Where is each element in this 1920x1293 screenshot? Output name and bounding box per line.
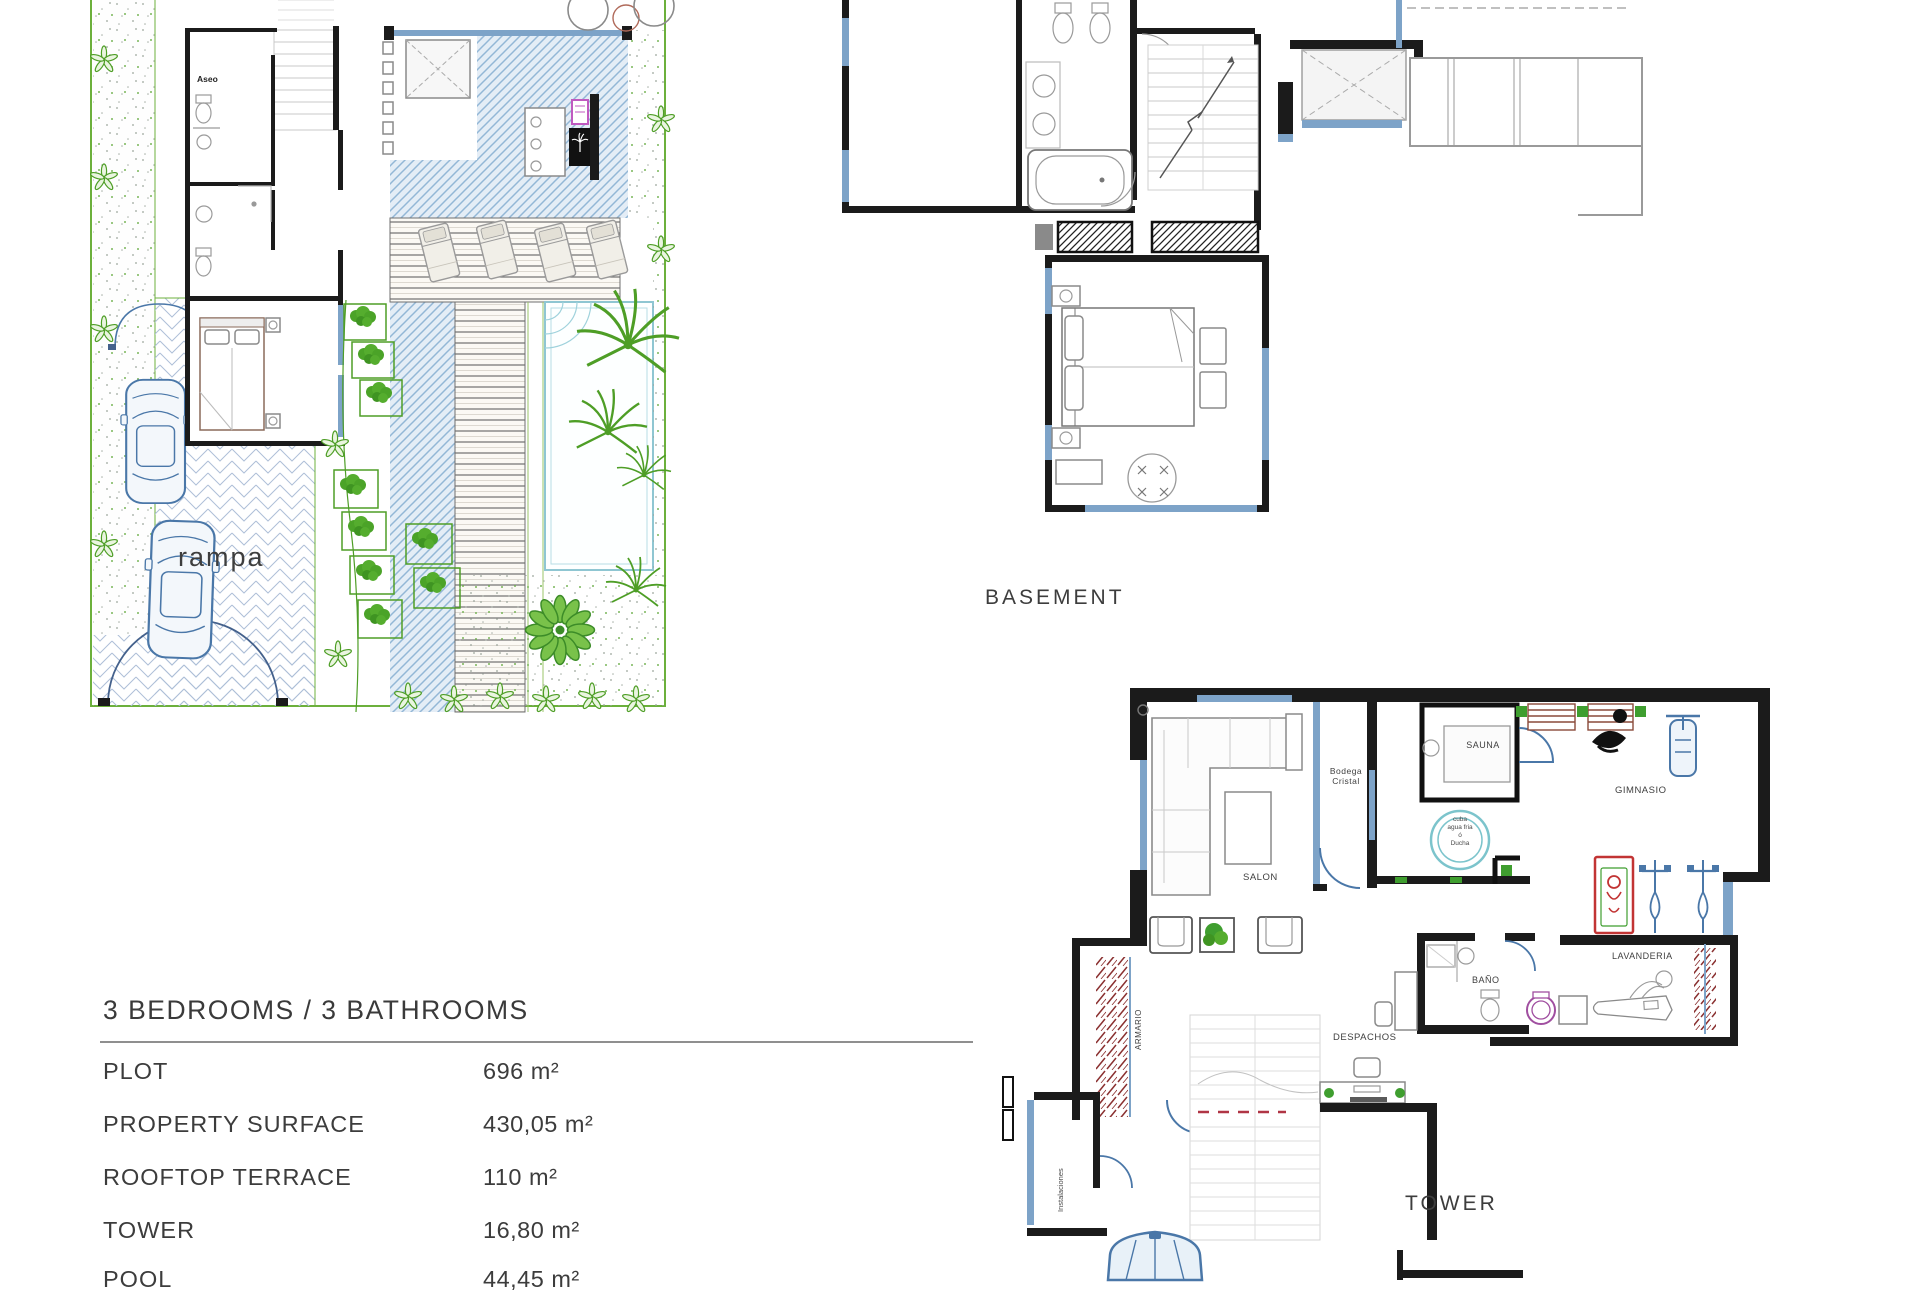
bodega-label: Bodega Cristal — [1316, 766, 1376, 786]
spec-label: TOWER — [103, 1217, 195, 1244]
house — [185, 0, 345, 446]
coffee-table — [1225, 792, 1271, 864]
stairs — [274, 0, 336, 130]
ironing-icon — [1594, 971, 1673, 1020]
spec-label: ROOFTOP TERRACE — [103, 1164, 352, 1191]
boulder-icons — [568, 0, 674, 31]
bodega-line1: Bodega — [1330, 766, 1362, 776]
instalaciones-label: Instalaciones — [1056, 1168, 1065, 1212]
basement-bathroom — [1026, 0, 1137, 210]
spec-value: 696 m² — [483, 1058, 559, 1085]
round-table-icon — [1128, 454, 1176, 502]
site-plan-drawing — [88, 0, 668, 712]
sauna-label: SAUNA — [1452, 740, 1514, 750]
lavanderia-label: LAVANDERIA — [1612, 951, 1673, 961]
car-icon — [121, 380, 190, 503]
armario-label: ARMARIO — [1134, 1009, 1143, 1050]
sink-icon — [1026, 62, 1060, 148]
toilet-icon — [1053, 3, 1110, 43]
cuba-line3: ó — [1458, 832, 1462, 839]
gym-machine-red — [1595, 857, 1633, 933]
skylight — [406, 40, 470, 98]
hanger-rail — [1694, 944, 1716, 1034]
garden-strip-left — [90, 0, 155, 635]
palm-sign-icon — [569, 128, 591, 166]
spec-label: PROPERTY SURFACE — [103, 1111, 365, 1138]
elevator — [1278, 40, 1423, 142]
bodega-corridor — [1313, 702, 1377, 891]
plant-icon — [1200, 918, 1234, 952]
cuba-line2: agua fria — [1447, 824, 1472, 831]
spec-value: 430,05 m² — [483, 1111, 593, 1138]
basement-stairs — [1135, 28, 1261, 230]
cuba-line1: cuba — [1453, 816, 1467, 823]
spec-value: 16,80 m² — [483, 1217, 580, 1244]
washer-icon — [1527, 992, 1555, 1024]
bench-icon — [1056, 460, 1102, 484]
tower-title: TOWER — [1405, 1192, 1498, 1216]
gym-machine-icon — [1666, 716, 1700, 776]
specs-divider — [100, 1041, 973, 1043]
bodega-line2: Cristal — [1332, 776, 1360, 786]
stairs — [1190, 1015, 1320, 1240]
gym-bottom-wall — [1560, 935, 1738, 945]
bano-label: BAÑO — [1472, 975, 1500, 985]
rampa-label: rampa — [178, 542, 265, 573]
basement-title: BASEMENT — [985, 586, 1125, 610]
bathtub-icon — [1028, 150, 1132, 210]
grating — [1035, 222, 1258, 252]
cuba-line4: Ducha — [1451, 840, 1470, 847]
spec-value: 110 m² — [483, 1164, 557, 1191]
salon-label: SALON — [1243, 872, 1278, 883]
page: { "site_plan": { "labels": { "aseo": "As… — [0, 0, 1920, 1280]
shower-icon — [1639, 860, 1719, 933]
car-icon — [142, 520, 221, 659]
basement-plan-drawing — [830, 0, 1680, 640]
cold-tub-label: cuba agua fria ó Ducha — [1428, 816, 1492, 848]
basement-bedroom — [1045, 255, 1269, 512]
aseo-label: Aseo — [197, 74, 218, 84]
spa-icon — [1108, 1232, 1202, 1280]
gimnasio-label: GIMNASIO — [1615, 785, 1667, 796]
bed-icon — [1052, 286, 1226, 448]
specs-title: 3 BEDROOMS / 3 BATHROOMS — [103, 995, 529, 1026]
spec-label: PLOT — [103, 1058, 168, 1085]
armario-closet — [1096, 957, 1130, 1117]
storage-closet — [1396, 0, 1642, 215]
despachos-label: DESPACHOS — [1333, 1032, 1396, 1043]
